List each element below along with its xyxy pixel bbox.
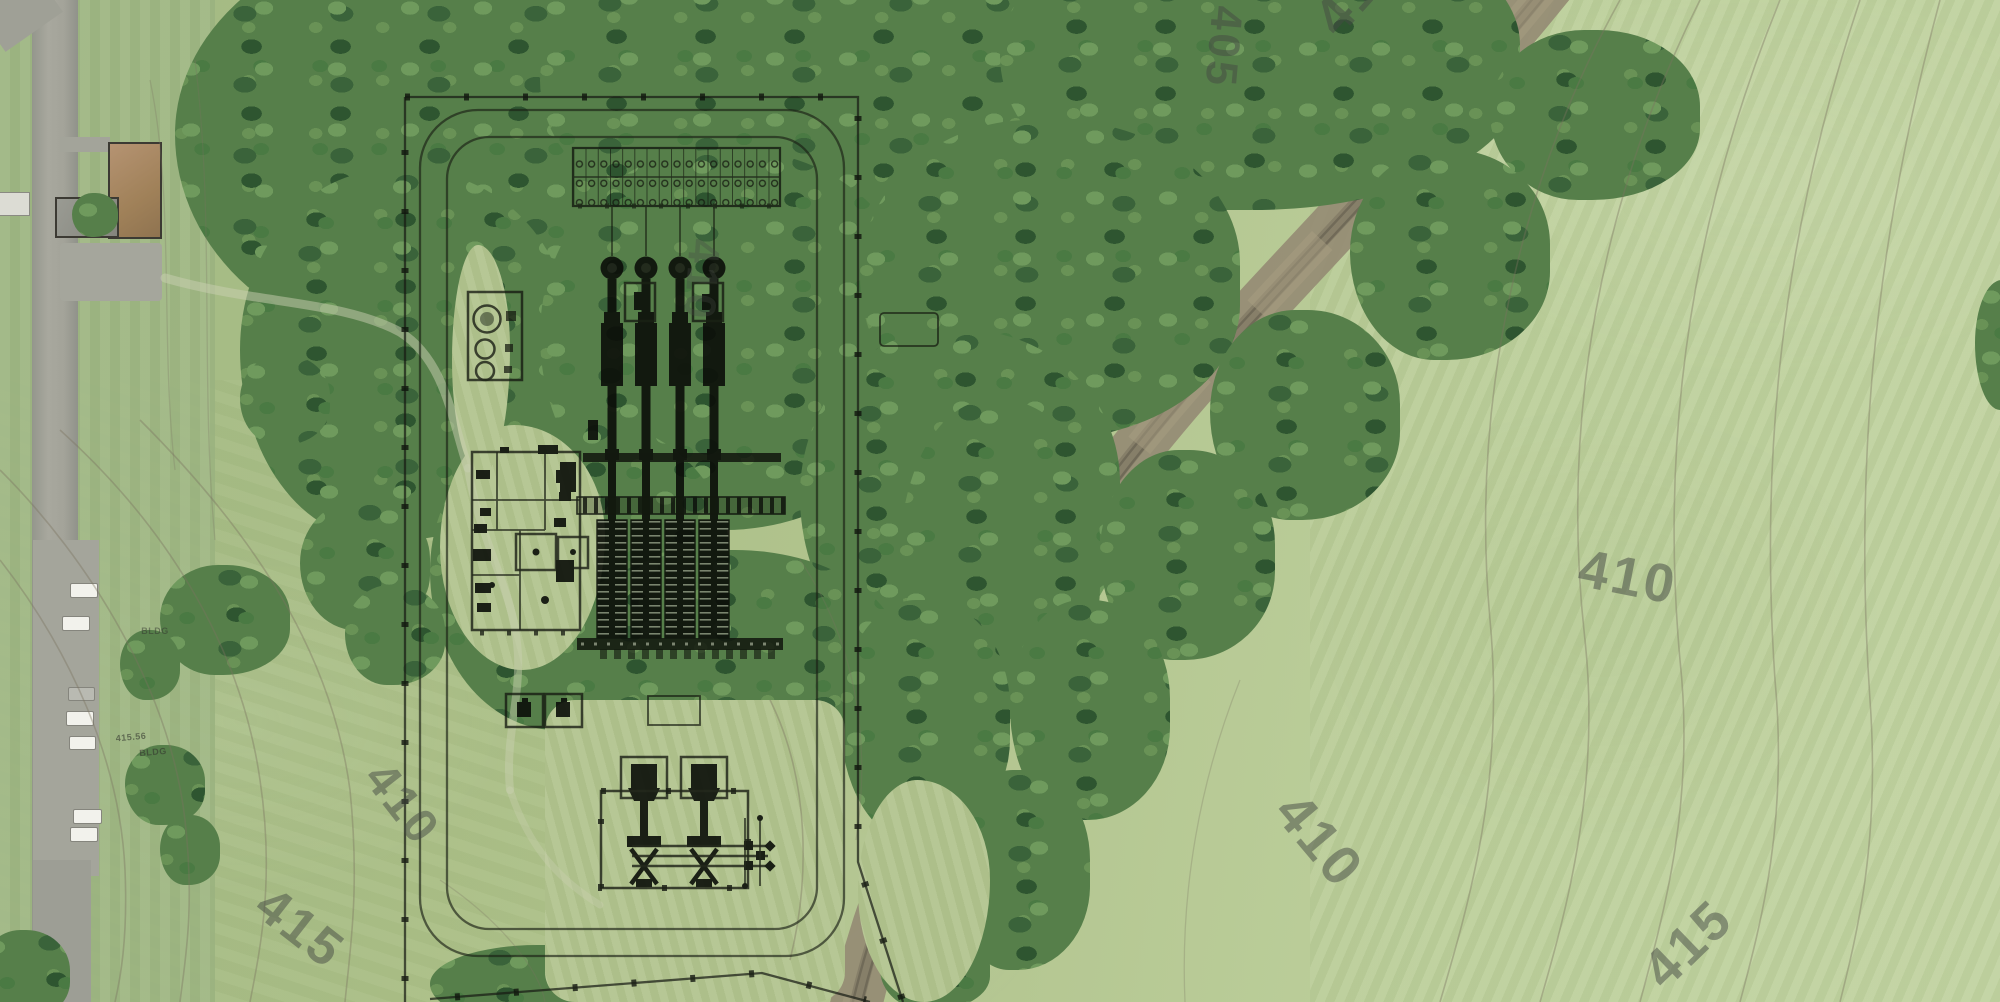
transformer-bays [556,257,785,655]
dead-end-towers [601,757,776,889]
dirt-trails [165,278,600,905]
site-plan [0,0,2000,1002]
aerial-map: 405410410410415410415410 415.56BLDGBLDG [0,0,2000,1002]
capacitor-bank [573,148,780,256]
tank-pad [468,292,522,380]
